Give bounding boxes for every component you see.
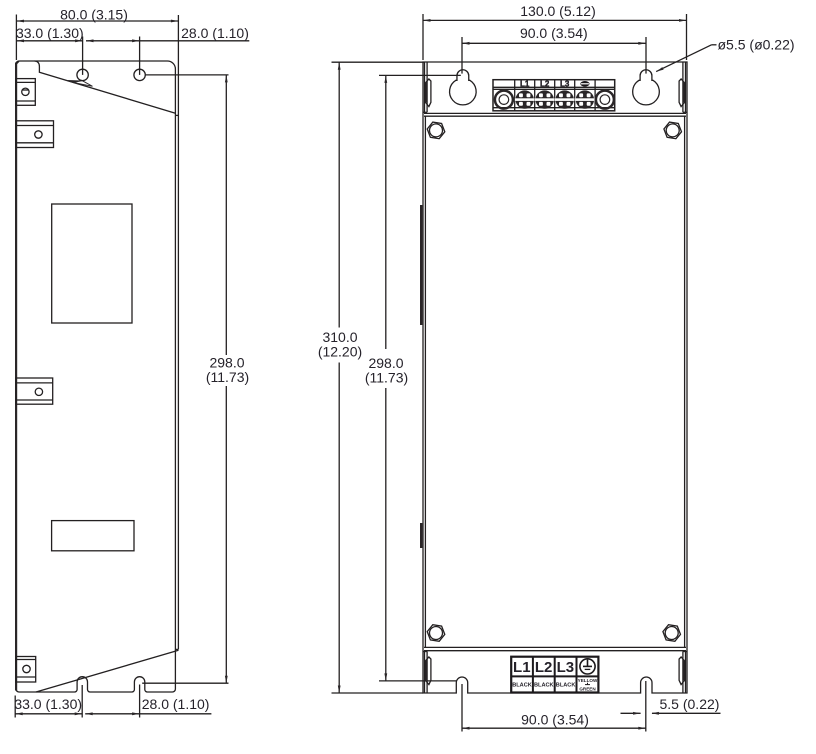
svg-text:(12.20): (12.20) bbox=[318, 343, 362, 359]
svg-text:L1: L1 bbox=[513, 659, 531, 676]
svg-text:(11.73): (11.73) bbox=[365, 369, 408, 385]
svg-text:5.5 (0.22): 5.5 (0.22) bbox=[660, 696, 720, 712]
svg-text:80.0 (3.15): 80.0 (3.15) bbox=[60, 7, 128, 23]
svg-text:ø5.5 (ø0.22): ø5.5 (ø0.22) bbox=[718, 37, 795, 53]
svg-text:L3: L3 bbox=[560, 80, 570, 89]
svg-text:90.0 (3.54): 90.0 (3.54) bbox=[520, 25, 588, 41]
svg-text:L1: L1 bbox=[520, 80, 530, 89]
svg-text:28.0 (1.10): 28.0 (1.10) bbox=[142, 696, 210, 712]
svg-text:33.0 (1.30): 33.0 (1.30) bbox=[14, 696, 82, 712]
svg-text:(11.73): (11.73) bbox=[206, 369, 249, 385]
svg-text:BLACK: BLACK bbox=[534, 683, 554, 689]
svg-text:BLACK: BLACK bbox=[512, 683, 532, 689]
svg-text:130.0 (5.12): 130.0 (5.12) bbox=[520, 3, 596, 19]
svg-text:YELLOW: YELLOW bbox=[578, 678, 598, 683]
svg-text:33.0 (1.30): 33.0 (1.30) bbox=[16, 25, 84, 41]
svg-text:28.0 (1.10): 28.0 (1.10) bbox=[181, 25, 249, 41]
svg-text:L2: L2 bbox=[540, 80, 550, 89]
svg-text:L2: L2 bbox=[535, 659, 553, 676]
svg-text:L3: L3 bbox=[557, 659, 575, 676]
svg-text:BLACK: BLACK bbox=[556, 683, 576, 689]
svg-text:GREEN: GREEN bbox=[579, 686, 596, 691]
svg-text:298.0: 298.0 bbox=[368, 355, 403, 371]
svg-text:90.0 (3.54): 90.0 (3.54) bbox=[521, 711, 589, 727]
